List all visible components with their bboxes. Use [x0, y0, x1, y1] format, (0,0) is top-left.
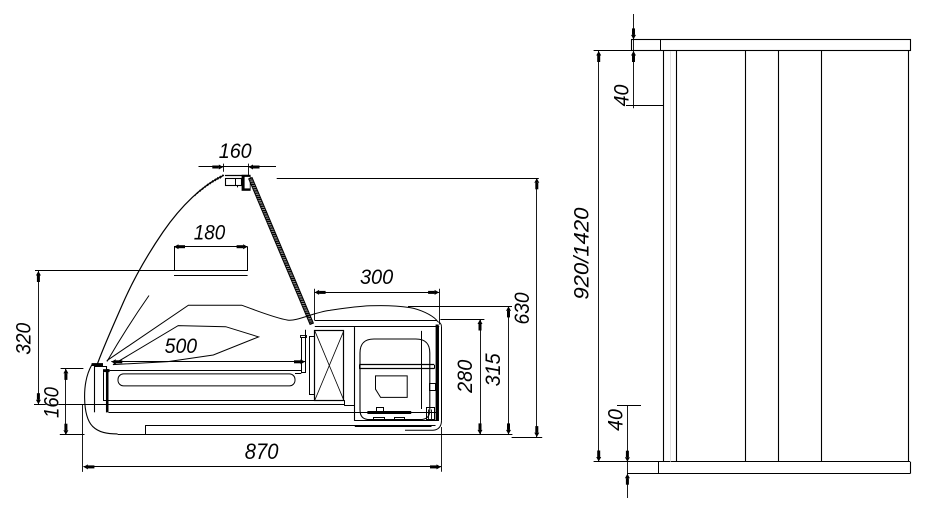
- svg-text:870: 870: [245, 439, 279, 464]
- svg-text:180: 180: [194, 221, 226, 245]
- svg-text:160: 160: [40, 387, 64, 418]
- svg-text:40: 40: [609, 85, 633, 107]
- svg-text:300: 300: [360, 265, 393, 289]
- svg-text:280: 280: [453, 360, 477, 394]
- svg-text:40: 40: [603, 409, 627, 431]
- svg-text:500: 500: [165, 334, 198, 358]
- svg-text:920/1420: 920/1420: [569, 208, 593, 300]
- svg-text:160: 160: [219, 139, 252, 163]
- svg-text:320: 320: [11, 323, 35, 355]
- svg-text:630: 630: [510, 292, 534, 324]
- svg-text:315: 315: [481, 352, 505, 386]
